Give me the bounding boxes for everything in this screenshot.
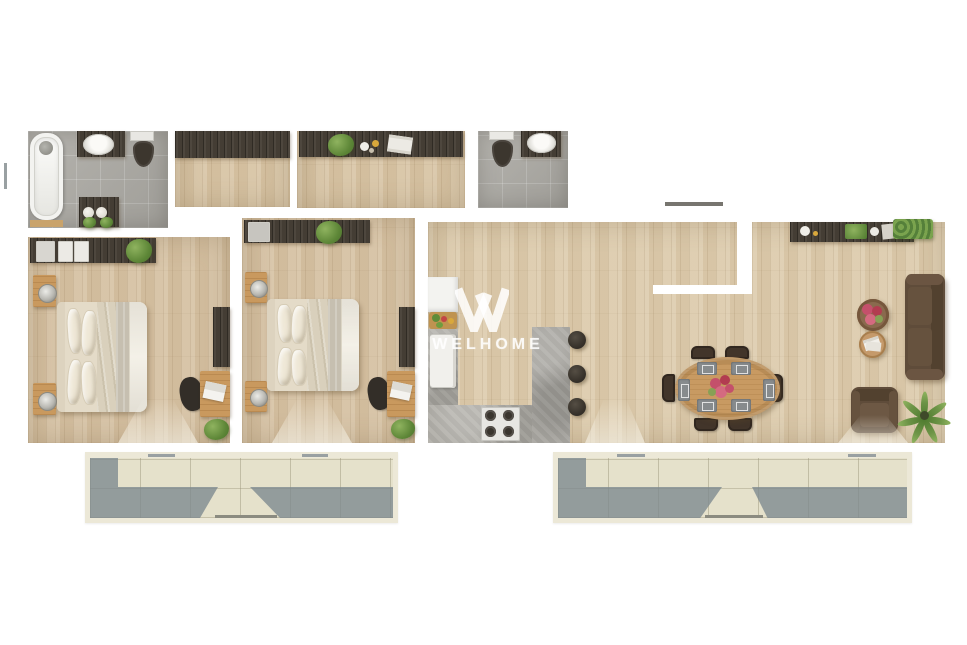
bedroom2-wardrobe <box>244 220 370 243</box>
dining-chair <box>694 418 718 431</box>
table-lamp <box>38 284 57 303</box>
tv-dresser <box>213 307 230 367</box>
armchair-seat <box>860 403 889 427</box>
palm-pot <box>920 411 929 420</box>
bathroom-window-mark <box>4 163 7 189</box>
balcony-shadow <box>558 458 586 518</box>
watermark-text: WELHOME <box>408 336 568 354</box>
desk-plant <box>204 419 229 440</box>
armchair-armrest <box>852 391 860 431</box>
balcony-shadow <box>250 487 393 518</box>
balcony-railing <box>705 515 763 518</box>
bed-runner <box>116 302 129 412</box>
decor-bowl <box>360 142 369 151</box>
washbasin <box>83 134 114 155</box>
bar-stool <box>568 365 586 383</box>
balcony-left <box>85 452 398 523</box>
sofa-back <box>931 277 943 377</box>
sofa-seat <box>908 328 932 366</box>
sofa <box>905 274 945 380</box>
balcony-shadow <box>90 458 118 518</box>
burner <box>503 410 514 421</box>
watermark: WELHOME <box>408 286 568 356</box>
sofa-armrest <box>906 369 943 380</box>
wardrobe-panel <box>74 241 89 262</box>
wardrobe-panel <box>58 241 73 262</box>
shower-mixer-icon <box>39 141 53 155</box>
sofa-seat <box>908 287 932 325</box>
wc-washbasin <box>527 133 556 153</box>
decor-dot <box>813 231 818 236</box>
toilet-tank <box>130 131 154 141</box>
room-bathroom <box>28 131 168 228</box>
sofa-armrest <box>906 274 943 285</box>
planter-box <box>845 224 867 239</box>
burner <box>485 426 496 437</box>
room-entry-hall <box>297 131 465 208</box>
hedge-planter <box>893 219 933 239</box>
wardrobe-panel <box>248 222 270 242</box>
decor-dot <box>369 148 374 153</box>
dining-chair <box>691 346 715 359</box>
table-lamp <box>250 280 268 298</box>
palm-plant <box>898 391 950 439</box>
bed-pillows <box>275 299 307 391</box>
closet-wardrobe <box>175 131 290 158</box>
bed-blanket <box>307 299 327 391</box>
wardrobe-panel <box>36 241 55 262</box>
wall-hall-vertical <box>737 204 752 293</box>
wc-toilet-bowl <box>492 140 513 167</box>
table-lamp <box>250 389 268 407</box>
balcony-door-threshold <box>617 454 645 457</box>
armchair <box>851 387 898 433</box>
balcony-door-threshold <box>302 454 328 457</box>
welhome-w-logo <box>455 286 509 332</box>
bathtub <box>30 133 63 220</box>
double-bed <box>57 302 147 412</box>
coffee-table-flowers <box>857 299 889 331</box>
table-lamp <box>38 392 57 411</box>
bed-duvet <box>341 299 359 391</box>
armchair-armrest <box>889 391 897 431</box>
entrance-door-mark <box>665 202 723 206</box>
balcony-door-threshold <box>148 454 175 457</box>
bed-blanket <box>97 302 117 412</box>
double-bed <box>267 299 359 391</box>
wall-hall-horizontal <box>653 285 752 294</box>
entry-console <box>299 131 463 157</box>
balcony-door-threshold <box>848 454 876 457</box>
bar-stool <box>568 331 586 349</box>
bar-stool <box>568 398 586 416</box>
balcony-shadow <box>118 487 218 518</box>
dining-chair <box>728 418 752 431</box>
room-wc <box>478 131 568 208</box>
bed-runner <box>328 299 341 391</box>
balcony-right-floor <box>558 458 907 518</box>
balcony-light <box>272 398 352 443</box>
floor-plan-canvas: WELHOME <box>0 0 967 645</box>
flower-centerpiece <box>706 372 736 402</box>
room-hall-closet <box>175 131 290 207</box>
bath-wood-step <box>30 220 63 227</box>
side-table-magazines <box>859 331 886 358</box>
placemat <box>763 379 775 401</box>
decor-dot <box>372 140 379 147</box>
decor-bowl <box>800 226 810 236</box>
balcony-light <box>585 398 645 443</box>
balcony-right <box>553 452 912 523</box>
bed-duvet <box>129 302 147 412</box>
burner <box>503 426 514 437</box>
balcony-left-floor <box>90 458 393 518</box>
balcony-shadow <box>752 487 907 518</box>
burner <box>485 410 496 421</box>
toilet-bowl <box>133 141 154 167</box>
balcony-shadow <box>586 487 722 518</box>
magazine <box>866 341 882 352</box>
decor-bowl <box>870 227 879 236</box>
dining-chair <box>662 374 675 402</box>
bed-pillows <box>65 302 97 412</box>
gas-hob <box>481 407 520 441</box>
balcony-railing <box>215 515 277 518</box>
room-bedroom-1 <box>28 237 230 443</box>
placemat <box>678 379 690 401</box>
room-bedroom-2 <box>242 218 415 443</box>
magazines <box>387 134 413 154</box>
desk-plant <box>391 419 415 439</box>
wc-toilet-tank <box>489 131 514 140</box>
